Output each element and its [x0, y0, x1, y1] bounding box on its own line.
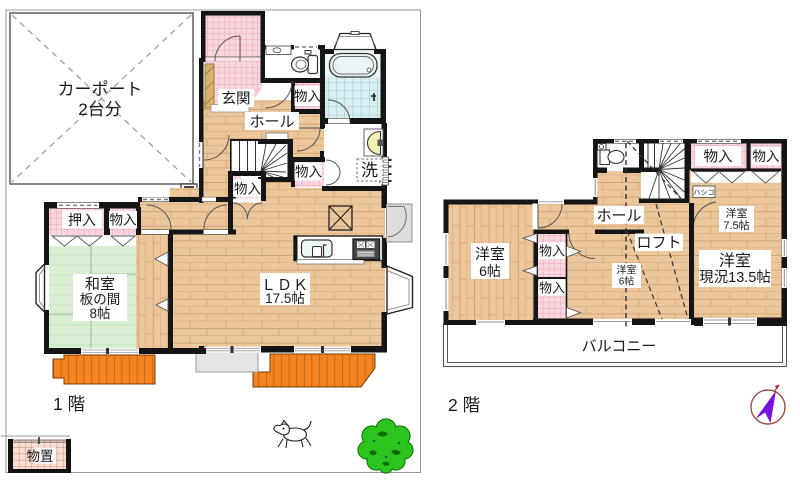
svg-text:玄関: 玄関 — [222, 91, 251, 108]
svg-text:バルコニー: バルコニー — [582, 338, 657, 355]
svg-text:ハシコ: ハシコ — [694, 189, 715, 197]
svg-text:物入: 物入 — [234, 182, 261, 197]
svg-text:物置: 物置 — [27, 449, 54, 464]
svg-text:6帖: 6帖 — [479, 263, 501, 279]
svg-text:物入: 物入 — [110, 213, 137, 228]
svg-text:物入: 物入 — [295, 165, 322, 180]
svg-text:洋室: 洋室 — [617, 264, 637, 277]
svg-text:現況13.5帖: 現況13.5帖 — [699, 269, 771, 286]
svg-text:洋室: 洋室 — [719, 252, 751, 270]
svg-text:ロフト: ロフト — [636, 235, 681, 252]
svg-text:洋室: 洋室 — [726, 206, 748, 220]
svg-text:カーポート: カーポート — [58, 80, 143, 99]
svg-text:1 階: 1 階 — [53, 394, 85, 414]
svg-text:7.5帖: 7.5帖 — [723, 219, 749, 232]
svg-text:2台分: 2台分 — [78, 100, 121, 119]
svg-text:物入: 物入 — [753, 149, 781, 164]
svg-text:洋室: 洋室 — [475, 246, 505, 263]
svg-text:物入: 物入 — [704, 149, 733, 166]
svg-text:6帖: 6帖 — [619, 275, 635, 288]
svg-text:2 階: 2 階 — [448, 395, 480, 415]
svg-text:8帖: 8帖 — [89, 306, 110, 321]
svg-text:押入: 押入 — [68, 212, 96, 228]
svg-text:洗: 洗 — [361, 161, 378, 180]
svg-text:和室: 和室 — [85, 276, 115, 293]
svg-text:物入: 物入 — [294, 89, 321, 104]
svg-text:17.5帖: 17.5帖 — [265, 291, 305, 306]
svg-text:板の間: 板の間 — [80, 292, 121, 307]
svg-text:物入: 物入 — [539, 281, 565, 296]
svg-text:物入: 物入 — [539, 244, 565, 259]
svg-text:ホール: ホール — [249, 114, 294, 131]
svg-text:ホール: ホール — [596, 208, 641, 225]
